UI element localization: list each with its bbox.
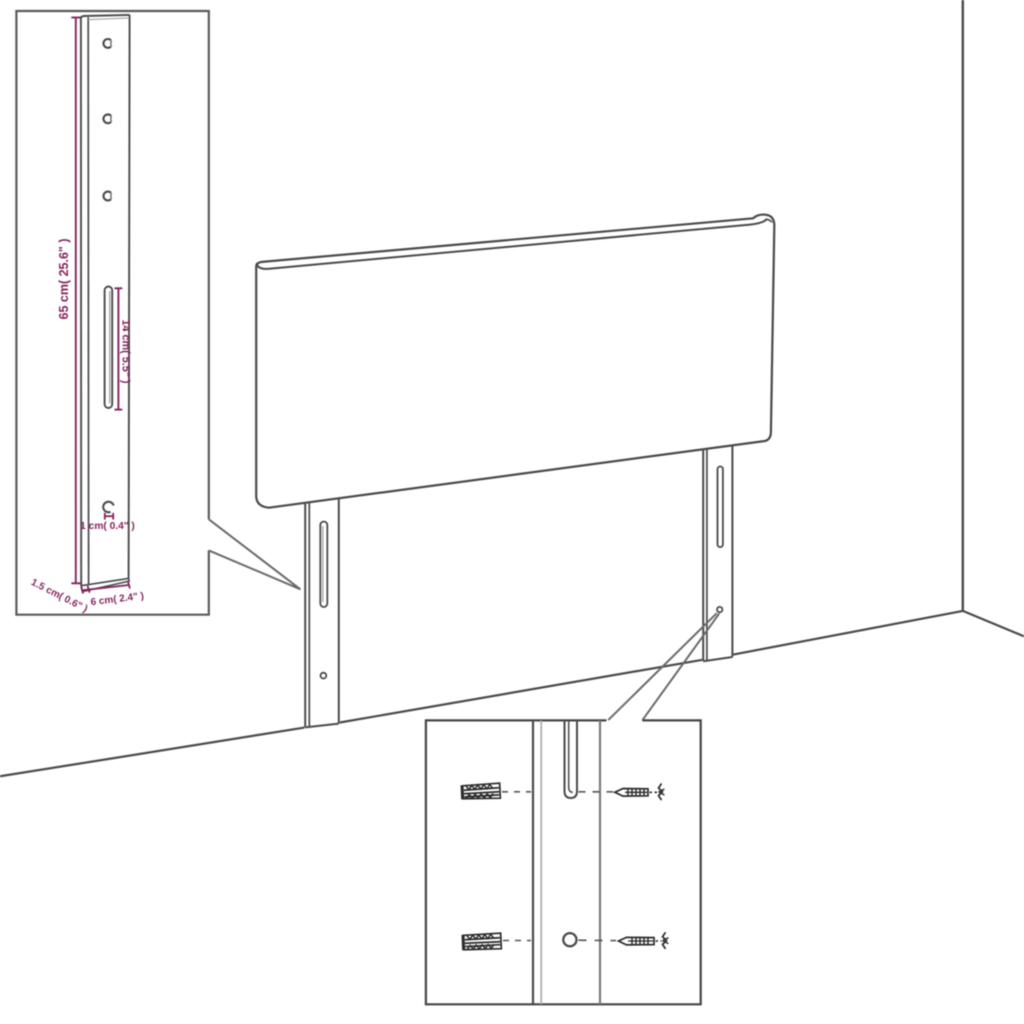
svg-text:14 cm( 5.5" ): 14 cm( 5.5" ) bbox=[120, 320, 132, 384]
svg-text:65 cm( 25.6" ): 65 cm( 25.6" ) bbox=[57, 239, 71, 320]
svg-text:1 cm( 0.4" ): 1 cm( 0.4" ) bbox=[80, 521, 135, 532]
